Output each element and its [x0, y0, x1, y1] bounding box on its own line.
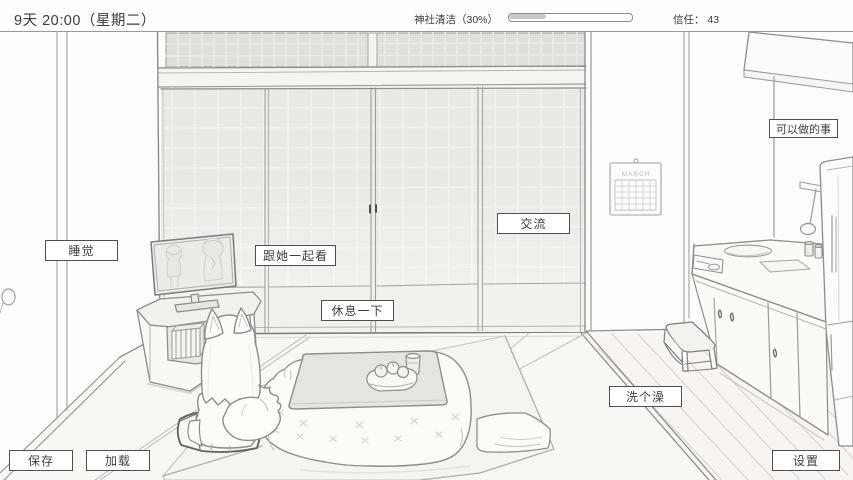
- svg-text:MARCH: MARCH: [622, 171, 651, 178]
